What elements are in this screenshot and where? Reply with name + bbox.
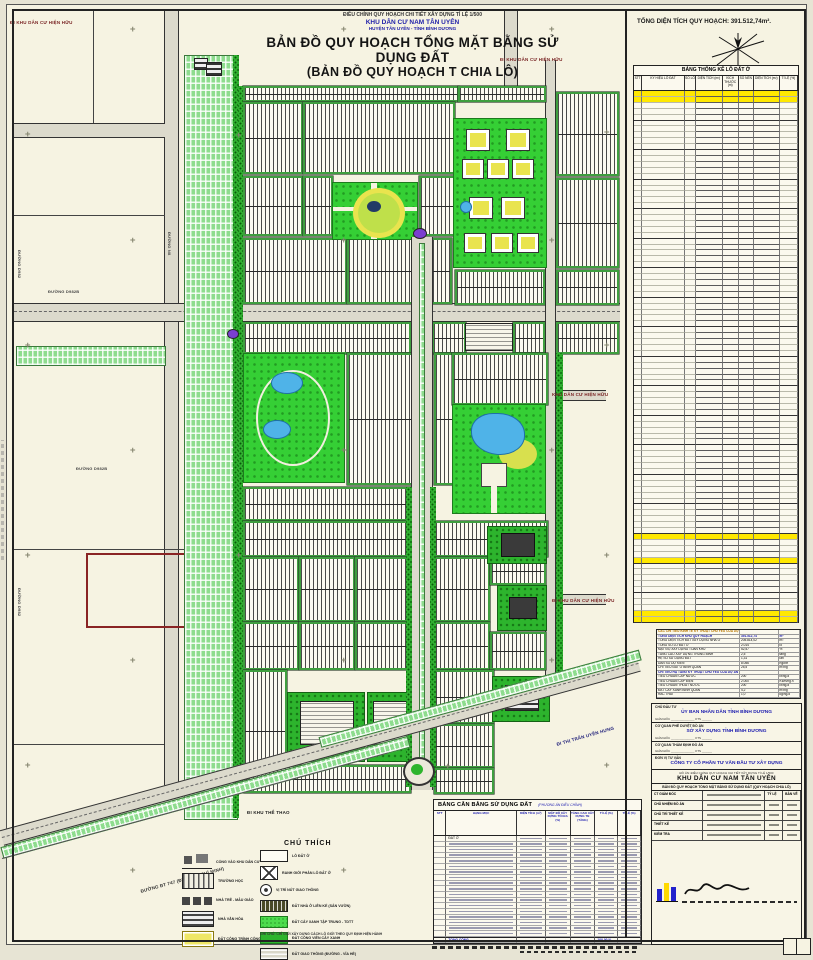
rowhouse-swatch [260,900,288,912]
kindergarten-icon [182,893,212,907]
map-title-line2: (BẢN ĐỒ QUY HOẠCH T CHIA LÔ) [245,65,580,79]
legend-note: GHI CHÚ: CHỈ GIỚI XÂY DỰNG CÁCH LỘ GIỚI … [260,932,428,936]
balance-col-header: TẦNG CAO XÂY DỰNG TB (TẦNG) [571,811,596,835]
map-header: ĐIỀU CHỈNH QUY HOẠCH CHI TIẾT XÂY DỰNG T… [245,12,580,79]
school-cluster [453,118,547,268]
junction-node-west [227,329,239,339]
footer-fineprint-1 [432,946,637,949]
grid-cross-icon: + [130,656,135,666]
legend-item: ĐẤT GIAO THÔNG (ĐƯỜNG - VỈA HÈ) [260,948,356,960]
signature-row: CHỦ NHIỆM ĐỒ ÁN [652,801,801,811]
legend-item: LÔ ĐẤT Ở [260,850,356,862]
signature-row: CT GIÁM ĐỐCTỶ LỆBẢN VẼ [652,791,801,801]
legend-right-column: LÔ ĐẤT ỞRANH GIỚI PHÂN LÔ ĐẤT ỞVỊ TRÍ NÚ… [260,850,356,960]
map-title-line1: BẢN ĐỒ QUY HOẠCH TỔNG MẶT BẰNG SỬ DỤNG Đ… [245,35,580,65]
grid-cross-icon: + [341,446,346,456]
road-label: ĐI KHU DÂN CƯ HIỆN HỮU [10,20,73,25]
balance-table-row: TỔNG CỘNG100,00 % [434,937,641,943]
balance-col-header: MẬT ĐỘ XÂY DỰNG TỐI ĐA (%) [546,811,571,835]
grid-cross-icon: + [604,551,609,561]
green-strip-west [16,346,166,366]
junction-node [413,228,427,239]
legend-item: VỊ TRÍ NÚT GIAO THÔNG [260,884,356,896]
public-icon [182,931,214,947]
boulevard-median [419,243,425,763]
legend-item-label: TRƯỜNG HỌC [218,879,243,883]
grid-cross-icon: + [25,761,30,771]
stat-table-title: BẢNG THỐNG KÊ LÔ ĐẤT Ở [634,66,798,76]
market-icon [182,911,214,927]
balance-col-header: DIỆN TÍCH (m²) [517,811,546,835]
road-north-south [164,10,179,798]
balance-col-header: HẠNG MỤC [446,811,516,835]
legend-item-label: ĐẤT CÔNG VIÊN CÂY XANH [292,936,340,940]
road-label: ĐƯỜNG N8 [167,232,172,255]
legend-item-label: LÔ ĐẤT Ở [292,854,309,858]
grid-cross-icon: + [604,761,609,771]
summary-table: CÁC CHỈ TIÊU KINH TẾ KỸ THUẬT CHỦ YẾU CỦ… [656,629,801,699]
stat-table-row [634,617,798,623]
title-block-footer [652,841,801,944]
grid-cross-icon: + [604,128,609,138]
total-area-note: TỔNG DIỆN TÍCH QUY HOẠCH: 391.512,74m². [637,18,799,25]
legend-item-label: NHÀ VĂN HÓA [218,917,243,921]
legend-item-label: ĐẤT NHÀ Ở LIÊN KẾ (SÂN VƯỜN) [292,904,350,908]
road-label: KHU DÂN CƯ HIỆN HỮU [552,392,608,397]
grid-cross-icon: + [445,762,450,772]
stat-col-header: DIỆN TÍCH (m²) [754,76,780,90]
road-label: ĐƯỜNG D982 [17,588,22,616]
grid-cross-icon: + [341,236,346,246]
balance-col-header: TỈ LỆ (%) [595,811,618,835]
signature-row: CHỦ TRÌ THIẾT KẾ [652,811,801,821]
grid-cross-icon: + [236,551,241,561]
road-label: ĐƯỜNG D982B [48,289,79,294]
node-swatch [260,884,272,896]
road-label: ĐI KHU THỂ THAO [247,810,290,815]
lot-statistics-table: BẢNG THỐNG KÊ LÔ ĐẤT Ở STTKÝ HIỆU LÔ ĐẤT… [633,65,799,623]
balance-table-title-row: BẢNG CÂN BẰNG SỬ DỤNG ĐẤT (PHƯƠNG ÁN ĐIỀ… [434,800,641,811]
stat-col-header: KÝ HIỆU LÔ ĐẤT [642,76,685,90]
legend-item-label: CỔNG VÀO KHU DÂN CƯ [216,860,260,864]
company-logo-icon [656,883,678,902]
signature-area [682,882,797,904]
balance-table-body: ĐẤT ỞTỔNG CỘNG100,00 % [434,836,641,943]
panel-separator [625,9,627,938]
lot-swatch [260,850,288,862]
road-swatch [260,948,288,960]
road-main-east-west [14,303,620,322]
legend-item-label: NHÀ TRẺ - MẪU GIÁO [216,898,254,902]
summary-row: RÁC THẢI1,0kg/ng.đ [657,693,800,698]
grid-cross-icon: + [130,446,135,456]
footer-box-2 [796,938,811,955]
grid-cross-icon: + [341,656,346,666]
stat-col-header: STT [634,76,642,90]
approval-line: ĐIỀU CHỈNH QUY HOẠCH CHI TIẾT XÂY DỰNG T… [245,12,580,18]
lake-park [452,404,546,514]
title-block-section: CƠ QUAN THẨM ĐỊNH ĐỒ ÁN GIÁM ĐỐC _______… [652,742,801,755]
grid-cross-icon: + [549,236,554,246]
grid-cross-icon: + [604,341,609,351]
balance-table-title: BẢNG CÂN BẰNG SỬ DỤNG ĐẤT [438,802,532,808]
road-label: ĐI KHU DÂN CƯ HIỆN HỮU [552,598,615,603]
central-park [332,182,418,240]
title-block-section: CHỦ ĐẦU TƯỦY BAN NHÂN DÂN TỈNH BÌNH DƯƠN… [652,704,801,723]
gate-icon [182,854,212,869]
grid-cross-icon: + [236,131,241,141]
grid-cross-icon: + [130,866,135,876]
market-building [465,323,513,351]
legend-item-label: ĐẤT GIAO THÔNG (ĐƯỜNG - VỈA HÈ) [292,952,356,956]
drawing-name: BẢN ĐỒ QUY HOẠCH TỔNG MẶT BẰNG SỬ DỤNG Đ… [652,784,801,791]
balance-table-note: (PHƯƠNG ÁN ĐIỀU CHỈNH) [538,803,582,807]
project-name: KHU DÂN CƯ NAM TÂN UYÊN [654,775,799,782]
stat-col-header: SỐ NỀN [739,76,754,90]
grid-cross-icon: + [549,656,554,666]
stat-table-body [634,91,798,622]
grid-cross-icon: + [25,551,30,561]
road-label: ĐƯỜNG D982 [17,250,22,278]
footer-fineprint-2 [520,951,638,953]
grid-cross-icon: + [130,25,135,35]
road-west-1 [14,123,165,138]
legend-item: ĐẤT CÂY XANH TẬP TRUNG - TDTT [260,916,356,928]
margin-text [1,440,4,560]
legend-item: ĐẤT NHÀ Ở LIÊN KẾ (SÂN VƯỜN) [260,900,356,912]
legend-item-label: ĐẤT CÂY XANH TẬP TRUNG - TDTT [292,920,353,924]
signature-scribble [682,882,752,898]
signature-row: THIẾT KẾ [652,821,801,831]
school-icon [182,873,214,889]
land-balance-table: BẢNG CÂN BẰNG SỬ DỤNG ĐẤT (PHƯƠNG ÁN ĐIỀ… [433,799,642,944]
right-panel: TỔNG DIỆN TÍCH QUY HOẠCH: 391.512,74m². … [627,9,802,938]
stat-col-header: TỈ LỆ (%) [780,76,798,90]
legend-item: RANH GIỚI PHÂN LÔ ĐẤT Ở [260,866,356,880]
balance-col-header: STT [434,811,446,835]
title-block-project: ĐỒ ÁN: ĐIỀU CHỈNH QUY HOẠCH CHI TIẾT XÂY… [652,770,801,784]
west-park [243,353,345,483]
boundary-swatch [260,866,278,880]
title-block: CHỦ ĐẦU TƯỦY BAN NHÂN DÂN TỈNH BÌNH DƯƠN… [651,703,802,945]
location-line: HUYỆN TÂN UYÊN - TỈNH BÌNH DƯƠNG [245,26,580,31]
grid-cross-icon: + [549,446,554,456]
plan-sheet: ĐI KHU DÂN CƯ HIỆN HỮUĐI KHU DÂN CƯ HIỆN… [0,0,813,960]
civic-green-1 [487,526,547,564]
legend-item-label: RANH GIỚI PHÂN LÔ ĐẤT Ở [282,871,331,875]
stat-col-header: KÍCH THƯỚC (m) [723,76,739,90]
project-line: KHU DÂN CƯ NAM TÂN UYÊN [245,19,580,26]
grid-cross-icon: + [25,130,30,140]
balance-table-header: STTHẠNG MỤCDIỆN TÍCH (m²)MẬT ĐỘ XÂY DỰNG… [434,811,641,836]
stat-table-header: STTKÝ HIỆU LÔ ĐẤTSỐ LÔDIỆN TÍCH (m²)KÍCH… [634,76,798,91]
balance-col-header: TỈ LỆ (%) [618,811,641,835]
green-belt [184,55,238,820]
legend-item-label: VỊ TRÍ NÚT GIAO THÔNG [276,888,319,892]
title-block-section: ĐƠN VỊ TƯ VẤNCÔNG TY CỔ PHẦN TƯ VẤN ĐẦU … [652,755,801,770]
title-block-section: CƠ QUAN PHÊ DUYỆT ĐỒ ÁNSỞ XÂY DỰNG TỈNH … [652,723,801,742]
road-label: ĐƯỜNG D982B [76,466,107,471]
legend: CHÚ THÍCH CỔNG VÀO KHU DÂN CƯTRƯỜNG HỌCN… [176,836,432,950]
legend-title: CHÚ THÍCH [284,840,332,847]
greenery-swatch [260,916,288,928]
grid-cross-icon: + [130,236,135,246]
signature-row: KIỂM TRA [652,831,801,841]
grid-cross-icon: + [25,341,30,351]
stat-col-header: DIỆN TÍCH (m²) [696,76,722,90]
stat-col-header: SỐ LÔ [685,76,696,90]
roundabout [403,757,435,786]
civic-green-2 [497,585,547,631]
